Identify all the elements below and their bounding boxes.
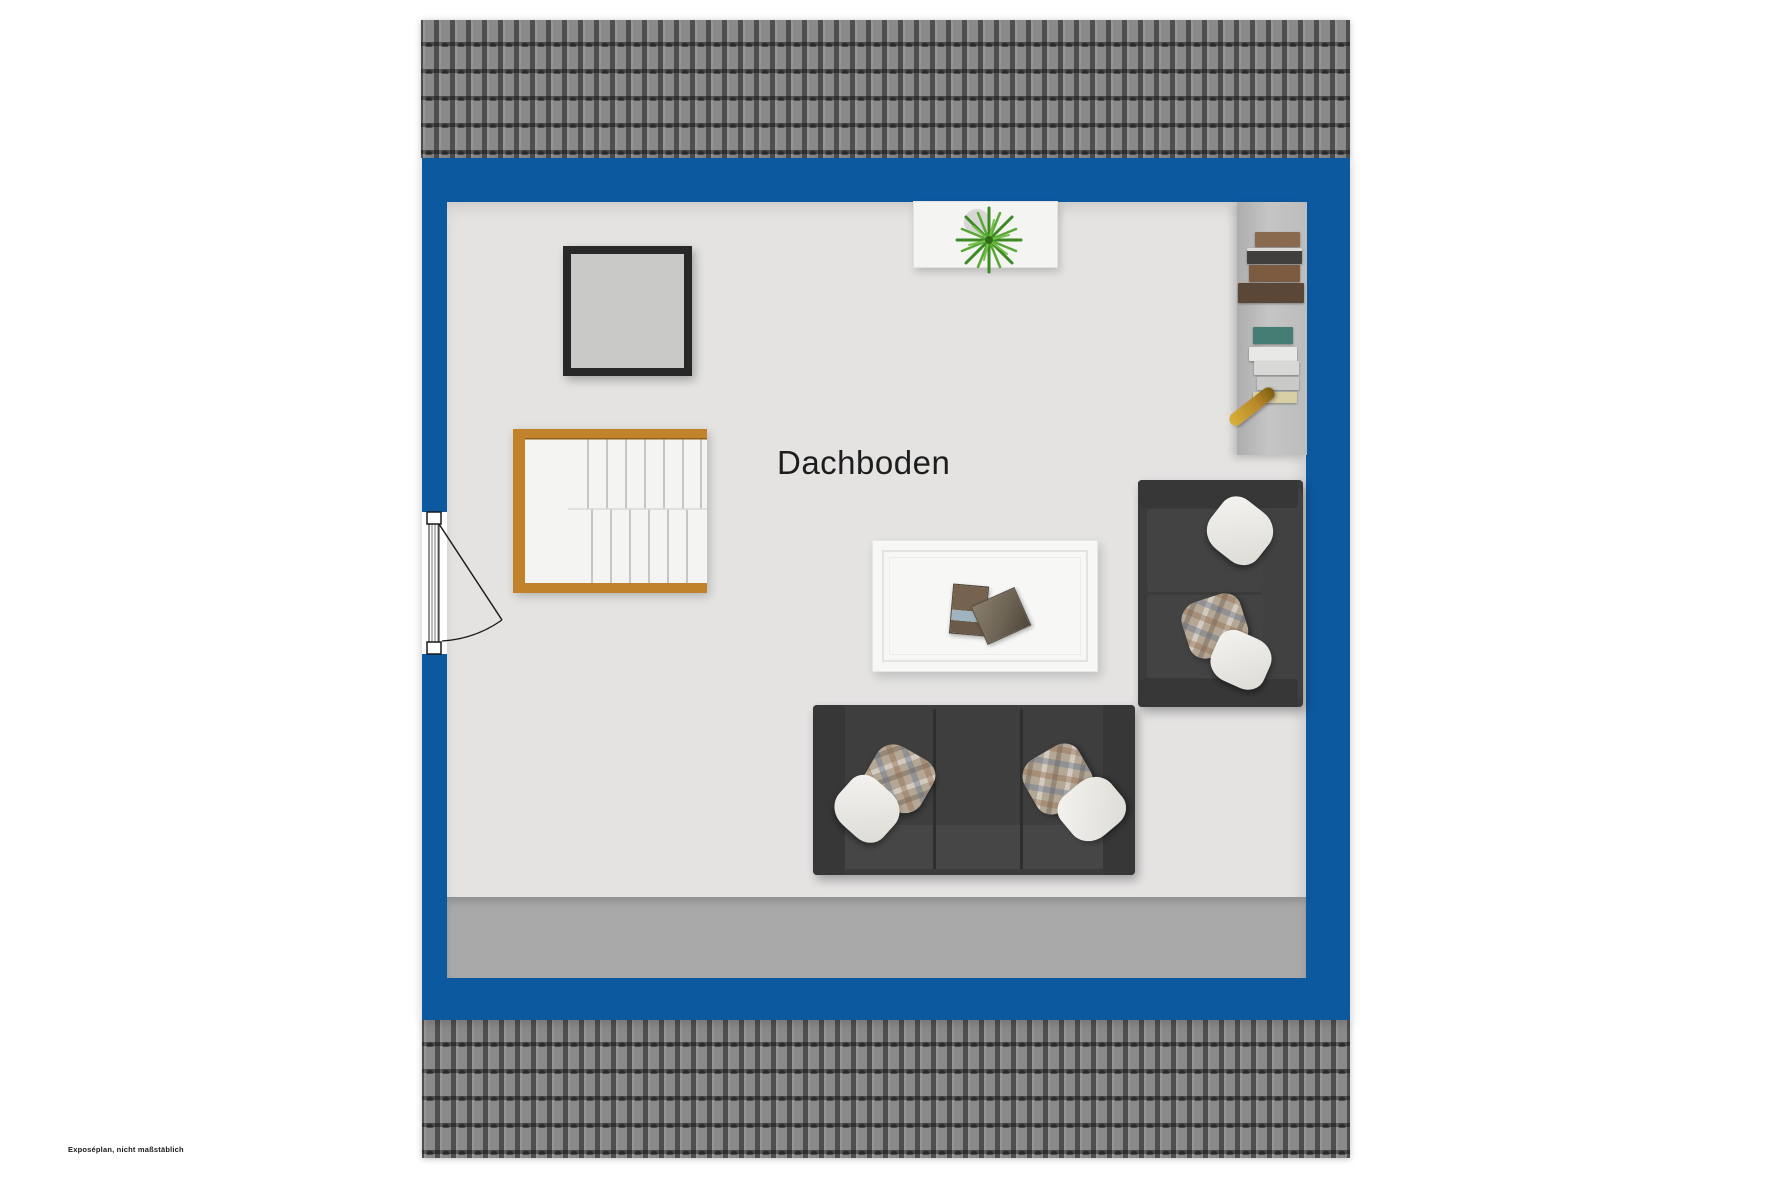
potted-plant <box>951 200 1027 276</box>
book-spine <box>1249 347 1297 361</box>
book-spine <box>1255 232 1300 247</box>
book-spine <box>1238 283 1304 303</box>
staircase <box>513 429 707 593</box>
door-slab <box>429 524 439 642</box>
book-spine <box>1247 248 1302 264</box>
room-label: Dachboden <box>777 444 950 482</box>
plant-leaves <box>957 208 1021 272</box>
two-seat-sofa <box>1138 480 1303 707</box>
three-seat-sofa <box>813 705 1135 875</box>
stair-frame-edge <box>525 438 707 440</box>
picture-frame <box>563 246 692 376</box>
stair-well <box>525 439 707 583</box>
sofa-armrest <box>1138 679 1298 707</box>
sofa-armrest <box>1138 480 1298 508</box>
door-jamb-top <box>427 512 441 524</box>
cushion-gap <box>1020 709 1023 869</box>
disclaimer-text: Exposéplan, nicht maßstäblich <box>68 1145 184 1154</box>
sofa-armrest <box>813 705 845 875</box>
roof-tiles-bottom <box>422 1020 1350 1158</box>
roof-tiles-top <box>421 20 1350 158</box>
book-spine <box>1253 327 1293 344</box>
lower-knee-wall-band <box>447 897 1306 978</box>
bookshelf <box>1237 202 1307 455</box>
book-spine <box>1254 361 1299 375</box>
door-swing-arc <box>442 620 502 641</box>
floor-plan-canvas: Dachboden Exposéplan, nicht maßstäblich <box>0 0 1772 1181</box>
coffee-table <box>872 540 1098 672</box>
door-jamb-bottom <box>427 642 441 654</box>
cushion-gap <box>933 709 936 869</box>
door-leaf-line <box>439 524 502 620</box>
book-spine <box>1249 265 1300 282</box>
entry-door <box>415 505 530 675</box>
